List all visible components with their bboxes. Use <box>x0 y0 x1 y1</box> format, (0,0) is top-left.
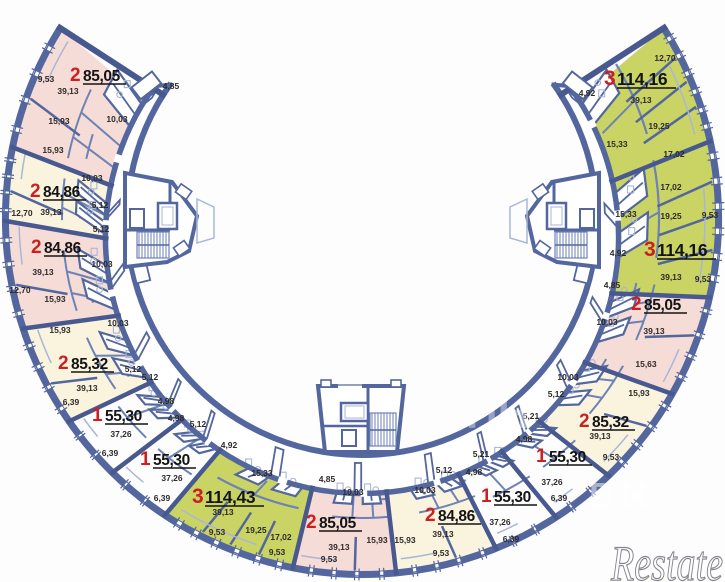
svg-text:39,13: 39,13 <box>32 267 54 277</box>
svg-text:6,39: 6,39 <box>63 397 80 407</box>
svg-text:39,13: 39,13 <box>76 383 98 393</box>
svg-text:2: 2 <box>631 294 642 315</box>
svg-text:12,70: 12,70 <box>11 208 33 218</box>
svg-text:84,86: 84,86 <box>438 508 476 525</box>
svg-text:55,30: 55,30 <box>494 489 531 506</box>
svg-text:Restate: Restate <box>610 535 723 582</box>
svg-text:4,92: 4,92 <box>610 248 627 258</box>
svg-text:9,53: 9,53 <box>321 554 338 564</box>
svg-text:15,33: 15,33 <box>606 139 628 149</box>
svg-text:9,53: 9,53 <box>38 74 55 84</box>
svg-text:3: 3 <box>192 485 204 508</box>
svg-text:15,63: 15,63 <box>635 359 657 369</box>
svg-text:17,02: 17,02 <box>660 182 682 192</box>
svg-text:10,03: 10,03 <box>342 487 364 497</box>
svg-text:37,26: 37,26 <box>110 429 132 439</box>
svg-text:39,13: 39,13 <box>643 326 665 336</box>
svg-text:4,85: 4,85 <box>163 81 180 91</box>
svg-text:9,53: 9,53 <box>433 548 450 558</box>
svg-text:3: 3 <box>644 238 656 261</box>
svg-text:15,93: 15,93 <box>366 535 388 545</box>
svg-text:4,98: 4,98 <box>466 467 483 477</box>
svg-text:5,12: 5,12 <box>436 465 453 475</box>
svg-text:4,92: 4,92 <box>579 88 596 98</box>
svg-text:84,86: 84,86 <box>44 240 82 257</box>
svg-text:17,02: 17,02 <box>270 532 292 542</box>
svg-text:39,13: 39,13 <box>57 86 79 96</box>
svg-text:39,13: 39,13 <box>630 95 652 105</box>
svg-text:85,05: 85,05 <box>83 68 121 85</box>
svg-text:5,21: 5,21 <box>473 449 490 459</box>
svg-text:12,70: 12,70 <box>9 285 31 295</box>
svg-text:5,12: 5,12 <box>93 224 110 234</box>
svg-text:10,03: 10,03 <box>81 173 103 183</box>
svg-text:10,03: 10,03 <box>107 318 129 328</box>
svg-text:5,12: 5,12 <box>142 372 159 382</box>
svg-text:37,26: 37,26 <box>541 477 563 487</box>
svg-text:15,93: 15,93 <box>394 535 416 545</box>
svg-text:114,16: 114,16 <box>657 240 708 260</box>
svg-text:ВН: ВН <box>589 475 653 516</box>
svg-text:5,12: 5,12 <box>92 200 109 210</box>
svg-text:4,92: 4,92 <box>221 440 238 450</box>
svg-text:85,32: 85,32 <box>71 356 108 373</box>
svg-text:2: 2 <box>58 353 69 374</box>
svg-text:19,25: 19,25 <box>648 121 670 131</box>
svg-text:3: 3 <box>604 67 616 90</box>
svg-text:37,26: 37,26 <box>161 473 183 483</box>
svg-text:1: 1 <box>140 449 151 470</box>
svg-text:114,43: 114,43 <box>205 487 256 507</box>
svg-text:6,39: 6,39 <box>102 448 119 458</box>
svg-text:15,93: 15,93 <box>49 325 71 335</box>
svg-text:4,85: 4,85 <box>319 474 336 484</box>
svg-text:17,02: 17,02 <box>663 149 685 159</box>
svg-text:39,13: 39,13 <box>40 207 62 217</box>
svg-text:37,26: 37,26 <box>489 517 511 527</box>
svg-text:85,05: 85,05 <box>319 515 357 532</box>
svg-text:39,13: 39,13 <box>328 542 350 552</box>
svg-text:39,13: 39,13 <box>589 431 611 441</box>
svg-text:2: 2 <box>70 65 81 86</box>
svg-text:19,25: 19,25 <box>660 211 682 221</box>
svg-text:15,93: 15,93 <box>628 388 650 398</box>
svg-text:84,86: 84,86 <box>43 184 81 201</box>
svg-text:10,03: 10,03 <box>106 114 128 124</box>
svg-text:1: 1 <box>92 405 103 426</box>
svg-text:10,03: 10,03 <box>414 485 436 495</box>
svg-text:1: 1 <box>536 446 547 467</box>
svg-text:10,03: 10,03 <box>91 259 113 269</box>
svg-text:2: 2 <box>30 181 41 202</box>
svg-text:6,39: 6,39 <box>154 493 171 503</box>
svg-text:1: 1 <box>481 486 492 507</box>
svg-text:9,53: 9,53 <box>702 210 719 220</box>
svg-text:ПН: ПН <box>466 389 529 438</box>
svg-text:114,16: 114,16 <box>617 69 668 89</box>
svg-text:39,13: 39,13 <box>660 272 682 282</box>
svg-text:9,53: 9,53 <box>269 547 286 557</box>
svg-text:4,85: 4,85 <box>604 280 621 290</box>
svg-text:2: 2 <box>306 512 317 533</box>
svg-text:15,93: 15,93 <box>44 294 66 304</box>
svg-text:15,93: 15,93 <box>48 116 70 126</box>
svg-text:10,03: 10,03 <box>557 372 579 382</box>
svg-text:2: 2 <box>31 237 42 258</box>
svg-text:4,98: 4,98 <box>168 413 185 423</box>
svg-text:2: 2 <box>579 411 590 432</box>
svg-text:55,30: 55,30 <box>153 452 190 469</box>
svg-text:15,33: 15,33 <box>251 468 273 478</box>
svg-text:15,33: 15,33 <box>615 209 637 219</box>
svg-text:5,12: 5,12 <box>190 419 207 429</box>
svg-text:5,12: 5,12 <box>125 364 142 374</box>
svg-text:5,12: 5,12 <box>548 389 565 399</box>
svg-text:12,70: 12,70 <box>654 53 676 63</box>
svg-text:4,98: 4,98 <box>158 396 175 406</box>
svg-text:39,13: 39,13 <box>432 529 454 539</box>
svg-text:55,30: 55,30 <box>549 449 586 466</box>
svg-text:55,30: 55,30 <box>105 408 142 425</box>
svg-text:85,05: 85,05 <box>644 297 682 314</box>
svg-text:9,53: 9,53 <box>695 274 712 284</box>
svg-text:15,93: 15,93 <box>42 145 64 155</box>
svg-text:6,39: 6,39 <box>503 534 520 544</box>
svg-text:85,32: 85,32 <box>592 414 629 431</box>
svg-text:2: 2 <box>425 505 436 526</box>
svg-text:6,39: 6,39 <box>551 493 568 503</box>
svg-text:10,03: 10,03 <box>596 317 618 327</box>
svg-text:9,53: 9,53 <box>209 527 226 537</box>
svg-text:19,25: 19,25 <box>245 525 267 535</box>
svg-text:39,13: 39,13 <box>212 507 234 517</box>
svg-text:9,53: 9,53 <box>603 452 620 462</box>
